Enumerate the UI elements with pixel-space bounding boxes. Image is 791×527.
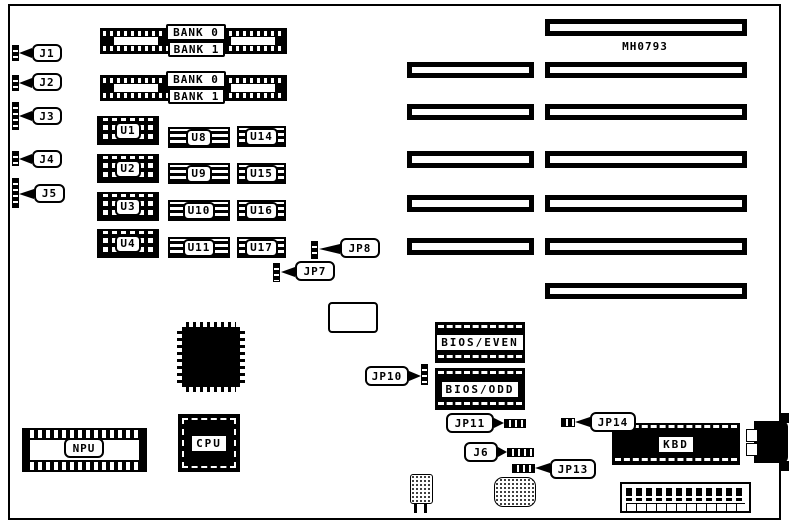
expansion-slot-4 (545, 151, 747, 168)
chip-u8-label: U8 (186, 129, 211, 147)
expansion-slot-6 (545, 238, 747, 255)
chip-npu-label: NPU (64, 438, 104, 458)
jumper-jp11-pins (504, 419, 526, 428)
npu-pin-row-bottom (30, 462, 139, 470)
chip-u11: U11 (168, 237, 230, 258)
speaker (494, 477, 536, 507)
chip-u10: U10 (168, 200, 230, 221)
chip-u3-label: U3 (115, 198, 140, 216)
keyboard-din-step-bottom (779, 461, 789, 471)
jumper-jp10-label: JP10 (365, 366, 409, 386)
jumper-jp13-label: JP13 (550, 459, 596, 479)
qfp-chipset (182, 327, 240, 387)
chip-u4: U4 (97, 229, 159, 258)
jumper-jp10-pins (421, 364, 428, 385)
expansion-slot-3-ext (407, 104, 534, 120)
jumper-j6-label: J6 (464, 442, 498, 462)
chip-u17-label: U17 (245, 239, 278, 257)
chip-u9-label: U9 (186, 165, 211, 183)
jumper-j6-pins (507, 448, 534, 457)
power-connector-dashes (626, 498, 745, 501)
chip-u10-label: U10 (183, 202, 216, 220)
qfp-pins-right (240, 331, 245, 383)
chip-u11-label: U11 (183, 239, 216, 257)
chip-u2: U2 (97, 154, 159, 183)
expansion-slot-5 (545, 195, 747, 212)
chip-u8: U8 (168, 127, 230, 148)
jumper-jp13-pins (512, 464, 535, 473)
chip-u15-label: U15 (245, 165, 278, 183)
power-connector-sockets (626, 503, 745, 512)
chip-u9: U9 (168, 163, 230, 184)
bank-group1-bank0-label: BANK 0 (166, 24, 226, 41)
crystal (410, 474, 433, 504)
keyboard-din-connector (754, 421, 788, 463)
chip-u2-label: U2 (115, 160, 140, 178)
chip-u1: U1 (97, 116, 159, 145)
chip-u14-label: U14 (245, 128, 278, 146)
chip-u15: U15 (237, 163, 286, 184)
chip-u14: U14 (237, 126, 286, 147)
chip-kbd-label: KBD (659, 437, 693, 452)
motherboard-diagram: J1 J2 J3 J4 J5 BANK 0 BANK 1 BANK 0 BANK… (0, 0, 791, 527)
chip-bios-even: BIOS/EVEN (435, 322, 525, 363)
crystal-leg-2 (424, 503, 427, 513)
oscillator (328, 302, 378, 333)
board-part-number: MH0793 (595, 40, 695, 53)
connector-j4-pins (12, 151, 19, 166)
chip-bios-odd-label: BIOS/ODD (441, 381, 520, 398)
expansion-slot-1 (545, 19, 747, 36)
connector-j5-label: J5 (34, 184, 65, 203)
chip-bios-even-label: BIOS/EVEN (436, 334, 524, 351)
connector-j2-label: J2 (32, 73, 62, 91)
jumper-jp8-label: JP8 (340, 238, 380, 258)
expansion-slot-2-ext (407, 62, 534, 78)
connector-j2-pins (12, 75, 19, 91)
qfp-pins-bottom (186, 387, 236, 392)
expansion-slot-7 (545, 283, 747, 299)
power-connector-pins (626, 488, 745, 496)
expansion-slot-3 (545, 104, 747, 120)
expansion-slot-2 (545, 62, 747, 78)
chip-bios-odd: BIOS/ODD (435, 368, 525, 410)
kbd-dash-bottom (615, 458, 737, 461)
bank1-slot-right (231, 37, 275, 45)
keyboard-din-plug-2 (746, 443, 758, 456)
chip-u1-label: U1 (115, 122, 140, 140)
jumper-jp7-pins (273, 263, 280, 282)
expansion-slot-4-ext (407, 151, 534, 168)
npu-pin-row-top (30, 430, 139, 438)
bank2-slot-left (114, 84, 158, 92)
cpu-socket: CPU (178, 414, 240, 472)
bios-even-dash-top (438, 325, 522, 328)
keyboard-din-plug-1 (746, 429, 758, 442)
jumper-jp14-pins (561, 418, 575, 427)
expansion-slot-5-ext (407, 195, 534, 212)
chip-u16-label: U16 (245, 202, 278, 220)
chip-u4-label: U4 (115, 235, 140, 253)
jumper-jp7-label: JP7 (295, 261, 335, 281)
bank-group1-bank1-label: BANK 1 (168, 41, 225, 57)
connector-j1-label: J1 (32, 44, 62, 62)
chip-u16: U16 (237, 200, 286, 221)
jumper-jp8-pins (311, 241, 318, 259)
chip-u3: U3 (97, 192, 159, 221)
bios-even-dash-bottom (438, 355, 522, 358)
connector-j3-pins (12, 102, 19, 130)
power-connector (620, 482, 751, 513)
bios-odd-dash-bottom (438, 402, 522, 405)
jumper-jp11-label: JP11 (446, 413, 494, 433)
bank-group2-bank0-label: BANK 0 (166, 71, 226, 88)
bank-group2-bank1-label: BANK 1 (168, 88, 225, 104)
chip-u17: U17 (237, 237, 286, 258)
expansion-slot-6-ext (407, 238, 534, 255)
connector-j3-label: J3 (32, 107, 62, 125)
bank1-slot-left (114, 37, 158, 45)
connector-j5-pins (12, 178, 19, 208)
connector-j1-pins (12, 45, 19, 61)
chip-cpu-label: CPU (192, 436, 226, 451)
jumper-jp14-label: JP14 (590, 412, 636, 432)
crystal-leg-1 (414, 503, 417, 513)
connector-j4-label: J4 (32, 150, 62, 168)
bank2-slot-right (231, 84, 275, 92)
bios-odd-dash-top (438, 371, 522, 374)
